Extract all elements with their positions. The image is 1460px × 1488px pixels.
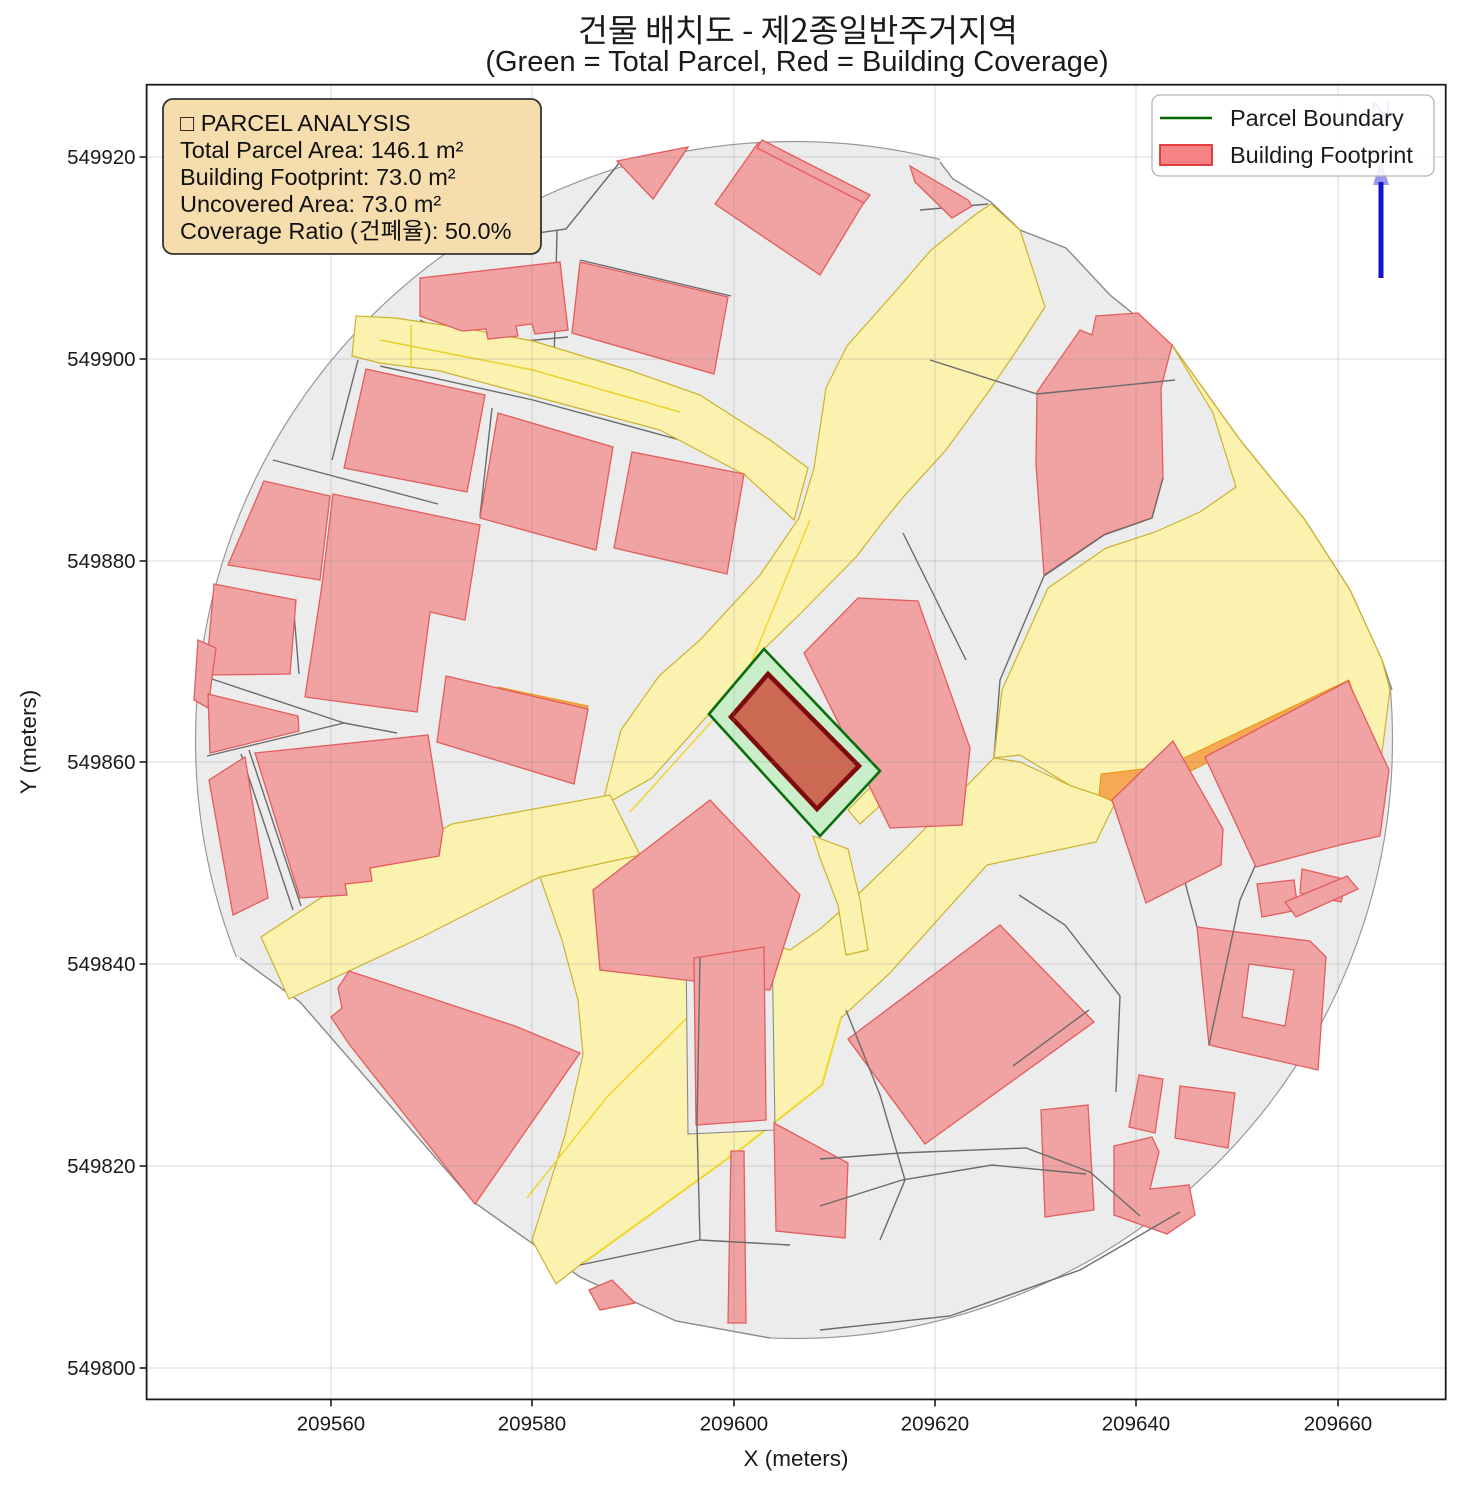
svg-text:Total Parcel Area: 146.1 m²: Total Parcel Area: 146.1 m² xyxy=(180,137,464,163)
svg-text:Building Footprint: Building Footprint xyxy=(1230,142,1413,168)
svg-text:209620: 209620 xyxy=(901,1412,969,1435)
svg-text:549800: 549800 xyxy=(67,1357,135,1380)
svg-text:Y (meters): Y (meters) xyxy=(16,690,41,795)
svg-text:Coverage Ratio (: Coverage Ratio ( xyxy=(180,218,358,244)
svg-text:X (meters): X (meters) xyxy=(743,1446,848,1471)
svg-text:209600: 209600 xyxy=(700,1412,768,1435)
svg-text:Uncovered Area: 73.0 m²: Uncovered Area: 73.0 m² xyxy=(180,191,441,217)
svg-text:549860: 549860 xyxy=(67,751,135,774)
svg-text:549820: 549820 xyxy=(67,1155,135,1178)
svg-text:209560: 209560 xyxy=(297,1412,365,1435)
svg-text:549840: 549840 xyxy=(67,953,135,976)
svg-text:549900: 549900 xyxy=(67,348,135,371)
svg-text:Parcel Boundary: Parcel Boundary xyxy=(1230,105,1404,131)
svg-text:209640: 209640 xyxy=(1102,1412,1170,1435)
svg-text:209660: 209660 xyxy=(1304,1412,1372,1435)
svg-text:): 50.0%: ): 50.0% xyxy=(424,218,512,244)
svg-text:□ PARCEL ANALYSIS: □ PARCEL ANALYSIS xyxy=(180,110,411,136)
svg-text:209580: 209580 xyxy=(498,1412,566,1435)
svg-text:Building Footprint: 73.0 m²: Building Footprint: 73.0 m² xyxy=(180,164,456,190)
svg-text:549920: 549920 xyxy=(67,146,135,169)
svg-text:(Green = Total Parcel, Red = B: (Green = Total Parcel, Red = Building Co… xyxy=(485,46,1108,78)
svg-text:549880: 549880 xyxy=(67,550,135,573)
